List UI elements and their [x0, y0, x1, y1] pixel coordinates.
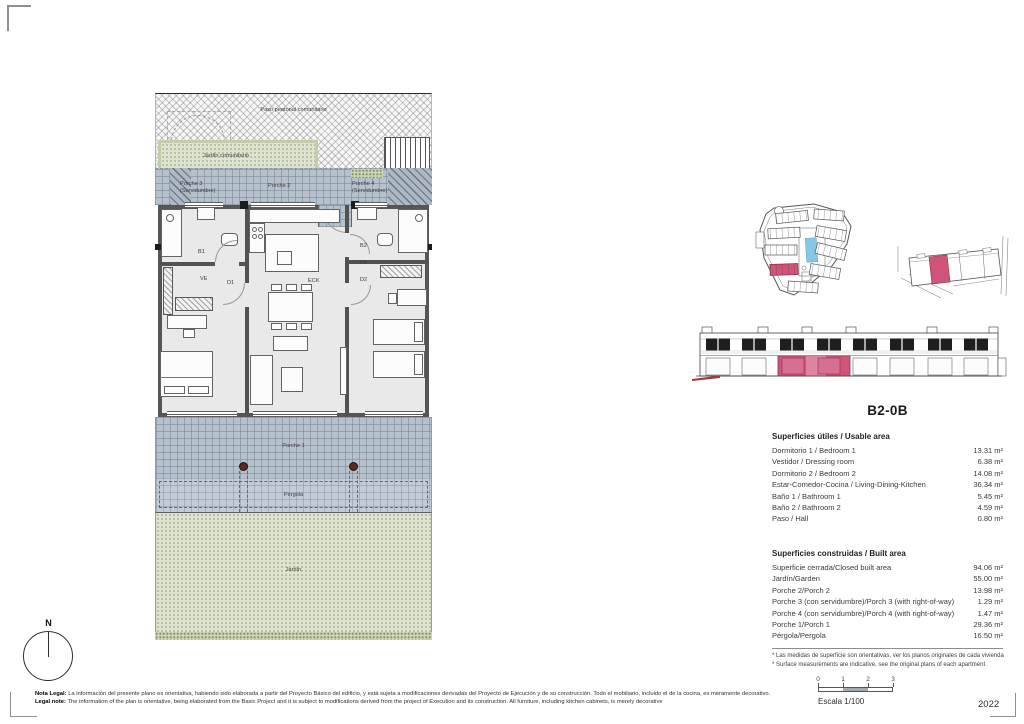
chair	[388, 293, 397, 304]
bath1-label: B1	[198, 249, 205, 256]
legal-note: Nota Legal: La información del presente …	[35, 690, 1015, 706]
hob-burner	[258, 234, 263, 239]
window	[251, 202, 315, 208]
area-row-label: Vestidor / Dressing room	[772, 456, 854, 467]
area-table-row: Baño 1 / Bathroom 15.45 m²	[772, 491, 1003, 502]
chair	[271, 323, 282, 330]
area-row-label: Porche 3 (con servidumbre)/Porch 3 (with…	[772, 596, 954, 607]
legal-note-es: La información del presente plano es ori…	[68, 691, 770, 697]
area-table-row: Dormitorio 1 / Bedroom 113.31 m²	[772, 445, 1003, 456]
bed-fold-line	[160, 377, 213, 378]
built-area-table-title: Superficies construidas / Built area	[772, 549, 1003, 558]
wall	[158, 262, 215, 266]
porch-column	[349, 462, 358, 471]
scale-tick-label: 1	[841, 676, 845, 683]
site-plan-block-detail	[895, 236, 1010, 298]
garden-label: Jardín	[155, 567, 432, 574]
legal-note-en-label: Legal note:	[35, 699, 66, 705]
legal-note-en: The information of the plan is orientati…	[67, 699, 662, 705]
staircase	[384, 137, 430, 171]
chair	[301, 323, 312, 330]
area-row-label: Estar-Comedor-Cocina / Living-Dining-Kit…	[772, 479, 926, 490]
area-row-value: 1.29 m²	[978, 596, 1003, 607]
area-row-value: 4.59 m²	[978, 502, 1003, 513]
floor-plan: Paso peatonal comunitario Jardín comunit…	[155, 93, 432, 640]
scale-tick-label: 2	[866, 676, 870, 683]
shower-head-icon	[166, 214, 174, 222]
area-table-row: Pérgola/Pergola16.50 m²	[772, 630, 1003, 641]
wardrobe	[163, 267, 173, 315]
hob-burner	[252, 234, 257, 239]
dining-table	[268, 292, 313, 322]
sink-2	[357, 207, 377, 220]
area-row-value: 29.36 m²	[973, 619, 1003, 630]
area-table-row: Porche 4 (con servidumbre)/Porch 4 (with…	[772, 608, 1003, 619]
pergola-label: Pérgola	[155, 492, 432, 499]
area-row-value: 13.31 m²	[973, 445, 1003, 456]
scale-tick-label: 3	[891, 676, 895, 683]
crop-mark-top-left	[7, 5, 31, 31]
dressing-label: VE	[200, 276, 207, 283]
area-row-label: Paso / Hall	[772, 513, 808, 524]
scale-label: Escala 1/100	[818, 697, 864, 706]
bedroom2-label: D2	[360, 277, 367, 284]
area-row-value: 16.50 m²	[973, 630, 1003, 641]
area-table-row: Dormitorio 2 / Bedroom 214.08 m²	[772, 468, 1003, 479]
shower-2	[398, 209, 428, 253]
bath2-label: B2	[360, 243, 367, 250]
area-row-label: Jardín/Garden	[772, 573, 820, 584]
area-row-value: 6.38 m²	[978, 456, 1003, 467]
area-row-label: Pérgola/Pergola	[772, 630, 826, 641]
area-row-value: 55.00 m²	[973, 573, 1003, 584]
site-plan-overview	[752, 202, 865, 299]
porch1-label: Porche 1	[155, 443, 432, 450]
area-row-label: Dormitorio 1 / Bedroom 1	[772, 445, 856, 456]
footnote-divider	[772, 648, 1003, 649]
area-row-value: 13.98 m²	[973, 585, 1003, 596]
area-row-value: 36.34 m²	[973, 479, 1003, 490]
kitchen-island	[265, 234, 319, 272]
loveseat	[273, 336, 308, 351]
sink-1	[197, 207, 215, 220]
desk-2	[397, 289, 427, 306]
area-row-label: Porche 1/Porch 1	[772, 619, 830, 630]
porch4-servitude-hatch	[388, 168, 432, 205]
pillow	[414, 354, 423, 375]
plan-sheet: Paso peatonal comunitario Jardín comunit…	[0, 0, 1024, 724]
highlighted-unit-block	[770, 264, 798, 276]
area-row-value: 0.80 m²	[978, 513, 1003, 524]
shower-head-icon	[415, 214, 423, 222]
built-area-table: Superficies construidas / Built area Sup…	[772, 549, 1003, 642]
building-elevation	[690, 322, 1010, 386]
pillow	[414, 322, 423, 342]
wall	[239, 262, 245, 266]
usable-area-table-title: Superficies útiles / Usable area	[772, 432, 1003, 441]
area-table-row: Porche 3 (con servidumbre)/Porch 3 (with…	[772, 596, 1003, 607]
area-row-value: 14.08 m²	[973, 468, 1003, 479]
chair	[286, 284, 297, 291]
sofa	[250, 355, 273, 405]
area-table-row: Jardín/Garden55.00 m²	[772, 573, 1003, 584]
area-row-value: 5.45 m²	[978, 491, 1003, 502]
area-table-row: Porche 1/Porch 129.36 m²	[772, 619, 1003, 630]
crop-mark-bottom-left	[10, 692, 37, 717]
porch2-label: Porche 2	[268, 183, 290, 190]
area-table-row: Estar-Comedor-Cocina / Living-Dining-Kit…	[772, 479, 1003, 490]
wall	[345, 205, 349, 233]
coffee-table	[281, 367, 303, 392]
desk-1	[167, 315, 207, 329]
porch-column	[239, 462, 248, 471]
wall	[245, 307, 249, 417]
chair	[301, 284, 312, 291]
footnote-es: * Las medidas de superficie son orientat…	[772, 652, 1012, 661]
north-label: N	[41, 618, 56, 628]
hob-burner	[252, 227, 257, 232]
chair	[271, 284, 282, 291]
hall-wardrobe	[380, 265, 422, 278]
area-table-row: Baño 2 / Bathroom 24.59 m²	[772, 502, 1003, 513]
area-table-row: Paso / Hall0.80 m²	[772, 513, 1003, 524]
usable-area-table: Superficies útiles / Usable area Dormito…	[772, 432, 1003, 525]
chair	[183, 329, 195, 338]
garden-border	[155, 632, 432, 640]
kitchen-counter	[249, 209, 340, 223]
porch4-label: Porche 4(Servidumbre)	[352, 181, 387, 194]
pillow	[164, 386, 185, 394]
column-marker	[240, 201, 248, 209]
green-patch	[351, 169, 383, 178]
footnote-en: * Surface measurements are indicative, s…	[772, 661, 1012, 670]
area-table-row: Vestidor / Dressing room6.38 m²	[772, 456, 1003, 467]
toilet-2	[377, 233, 393, 246]
area-row-value: 94.06 m²	[973, 562, 1003, 573]
area-row-label: Baño 2 / Bathroom 2	[772, 502, 841, 513]
area-row-label: Baño 1 / Bathroom 1	[772, 491, 841, 502]
area-table-row: Porche 2/Porch 213.98 m²	[772, 585, 1003, 596]
area-row-label: Porche 4 (con servidumbre)/Porch 4 (with…	[772, 608, 954, 619]
area-table-row: Superficie cerrada/Closed built area94.0…	[772, 562, 1003, 573]
area-row-label: Dormitorio 2 / Bedroom 2	[772, 468, 856, 479]
legal-note-es-label: Nota Legal:	[35, 691, 67, 697]
area-row-value: 1.47 m²	[978, 608, 1003, 619]
hall-label: PA	[360, 260, 367, 267]
year-label: 2022	[978, 699, 999, 710]
highlighted-unit-elevation	[778, 356, 850, 376]
highlighted-unit	[929, 255, 950, 284]
unit-title: B2-0B	[772, 403, 1003, 418]
bedroom1-label: D1	[227, 280, 234, 287]
scale-tick-label: 0	[816, 676, 820, 683]
scale-bar	[818, 687, 893, 692]
tv-cabinet	[340, 347, 347, 395]
living-label: ECK	[308, 278, 320, 285]
area-row-label: Superficie cerrada/Closed built area	[772, 562, 891, 573]
communal-garden-label: Jardín comunitario	[203, 153, 249, 160]
area-row-label: Porche 2/Porch 2	[772, 585, 830, 596]
wardrobe	[175, 297, 213, 311]
north-arrow-needle	[48, 632, 49, 657]
kitchen-sink	[277, 251, 292, 265]
chair	[286, 323, 297, 330]
porch3-label: Porche 3(Servidumbre)	[180, 181, 215, 194]
pillow	[188, 386, 209, 394]
hob-burner	[258, 227, 263, 232]
